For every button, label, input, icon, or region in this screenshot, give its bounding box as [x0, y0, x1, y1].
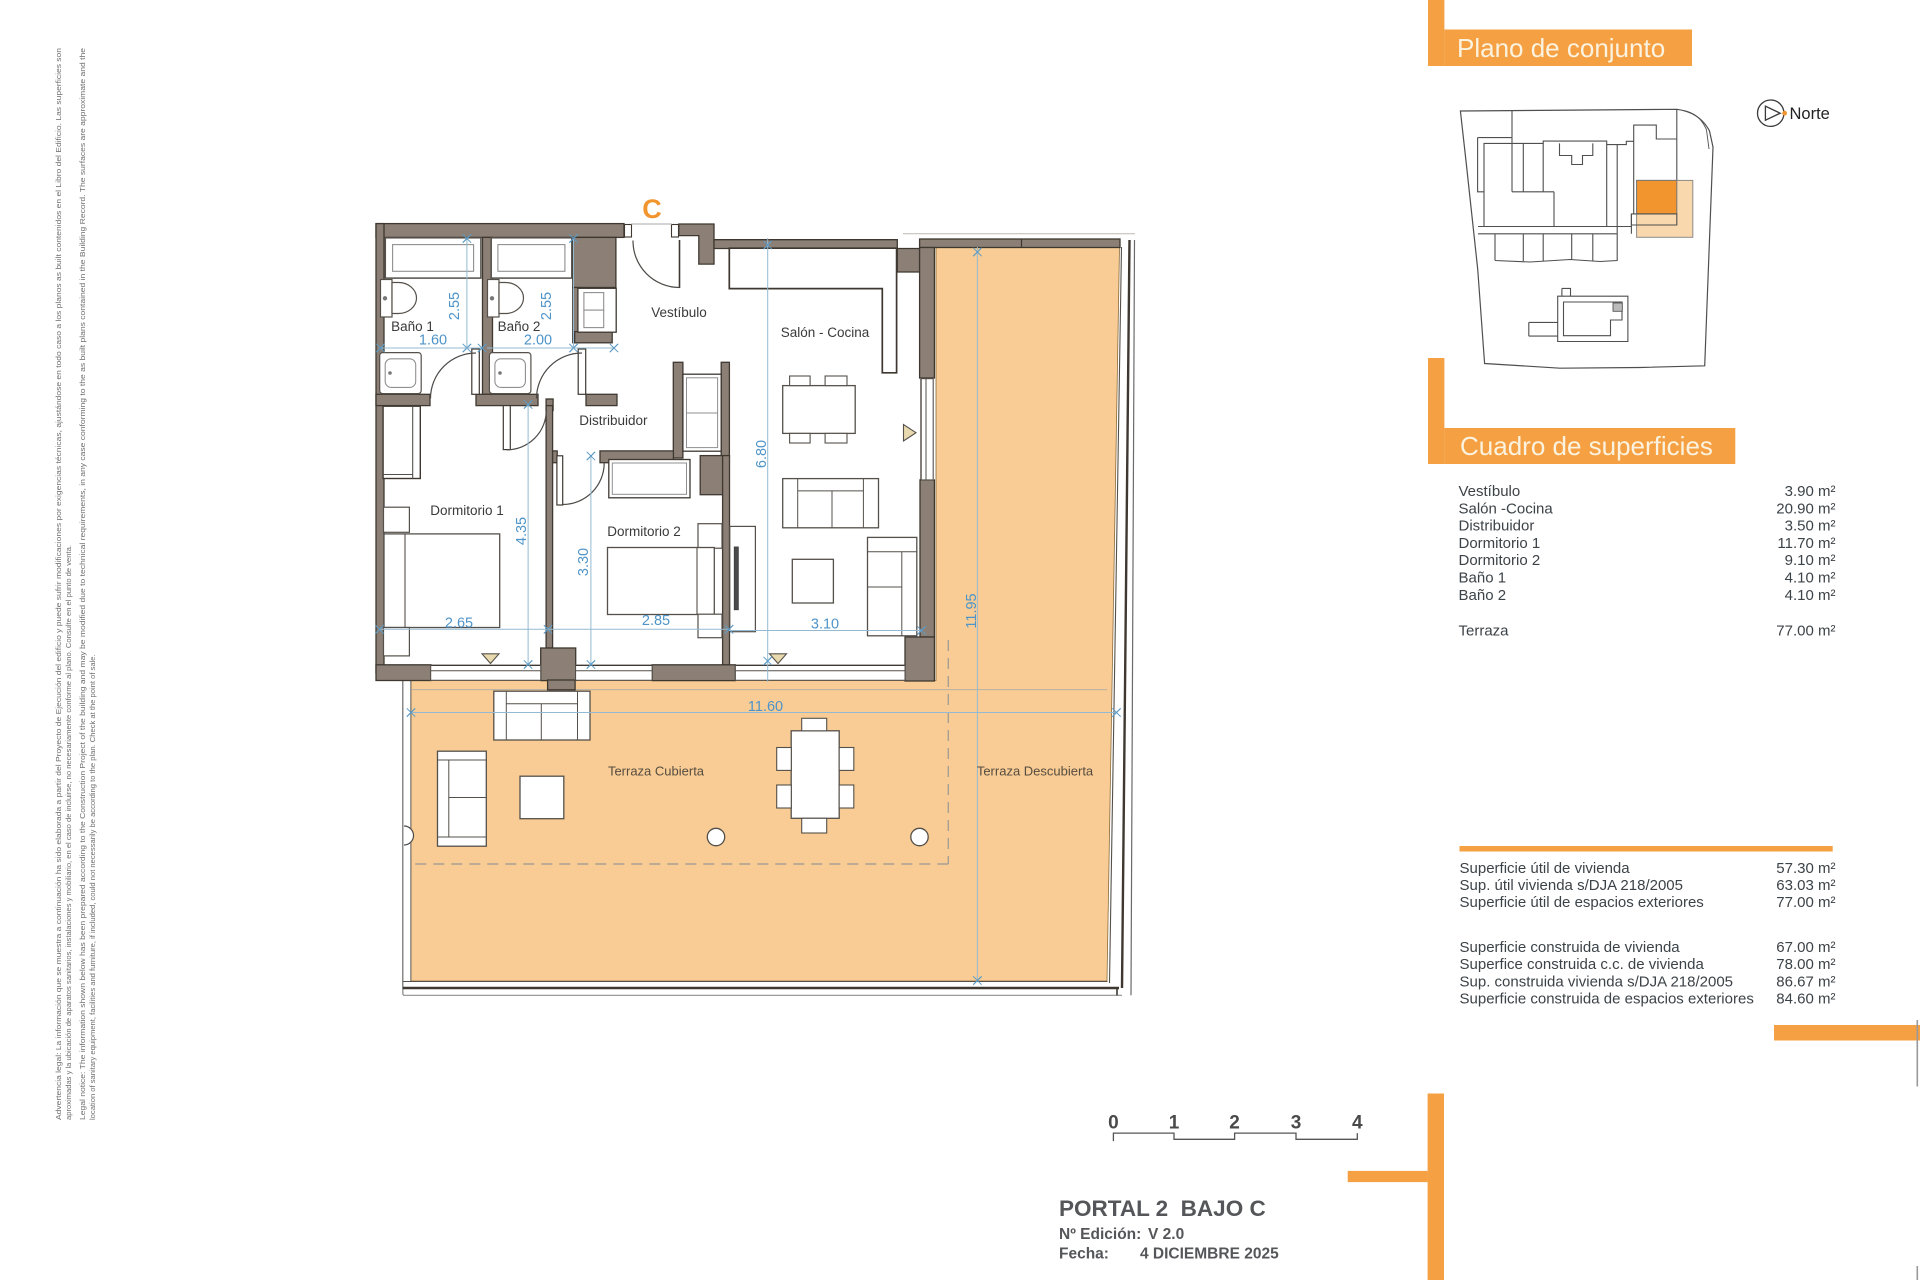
svg-text:Superficie útil de vivienda: Superficie útil de vivienda — [1460, 860, 1631, 877]
svg-text:77.00 m²: 77.00 m² — [1776, 623, 1835, 640]
svg-text:3.10: 3.10 — [811, 617, 839, 633]
svg-text:4.10 m²: 4.10 m² — [1785, 587, 1836, 604]
svg-text:77.00 m²: 77.00 m² — [1776, 894, 1835, 911]
svg-text:0: 0 — [1108, 1113, 1119, 1134]
svg-text:location of sanitary equipment: location of sanitary equipment, faciliti… — [88, 654, 97, 1120]
svg-text:57.30 m²: 57.30 m² — [1776, 860, 1835, 877]
svg-text:Norte: Norte — [1790, 105, 1830, 123]
svg-text:Dormitorio 2: Dormitorio 2 — [1459, 552, 1541, 569]
svg-text:Cuadro de superficies: Cuadro de superficies — [1460, 431, 1713, 461]
svg-text:2.00: 2.00 — [524, 333, 552, 349]
svg-text:4.10 m²: 4.10 m² — [1785, 570, 1836, 587]
svg-text:78.00 m²: 78.00 m² — [1776, 956, 1835, 973]
svg-text:V 2.0: V 2.0 — [1148, 1226, 1184, 1243]
svg-text:Sup. construida vivienda s/DJA: Sup. construida vivienda s/DJA 218/2005 — [1460, 973, 1734, 990]
svg-text:6.80: 6.80 — [754, 440, 770, 468]
svg-text:Fecha:: Fecha: — [1059, 1246, 1109, 1263]
svg-text:Advertencia legal: La informac: Advertencia legal: La información que se… — [54, 48, 63, 1120]
svg-text:Dormitorio 2: Dormitorio 2 — [607, 524, 681, 539]
svg-text:aproximadas y la ubicación de: aproximadas y la ubicación de aparatos s… — [64, 545, 73, 1120]
svg-text:1: 1 — [1169, 1113, 1180, 1134]
svg-text:86.67 m²: 86.67 m² — [1776, 973, 1835, 990]
svg-text:Baño 2: Baño 2 — [1459, 587, 1507, 604]
svg-text:11.60: 11.60 — [748, 699, 783, 715]
svg-text:Superficie construida de espac: Superficie construida de espacios exteri… — [1460, 991, 1754, 1008]
svg-text:2.85: 2.85 — [642, 613, 670, 629]
svg-text:4: 4 — [1352, 1113, 1363, 1134]
svg-text:Baño 1: Baño 1 — [391, 319, 434, 334]
svg-text:Superficie construida de vivie: Superficie construida de vivienda — [1460, 939, 1681, 956]
svg-text:11.70 m²: 11.70 m² — [1777, 535, 1835, 552]
svg-text:3.90 m²: 3.90 m² — [1785, 483, 1836, 500]
svg-text:67.00 m²: 67.00 m² — [1776, 939, 1835, 956]
svg-text:2.55: 2.55 — [539, 292, 555, 320]
svg-text:Baño 2: Baño 2 — [498, 319, 541, 334]
svg-text:63.03 m²: 63.03 m² — [1776, 877, 1835, 894]
svg-text:Superficie útil de espacios ex: Superficie útil de espacios exteriores — [1460, 894, 1704, 911]
svg-text:Dormitorio 1: Dormitorio 1 — [430, 503, 504, 518]
svg-text:2.55: 2.55 — [447, 292, 463, 320]
svg-text:C: C — [642, 194, 662, 224]
svg-text:Sup. útil vivienda s/DJA 218/2: Sup. útil vivienda s/DJA 218/2005 — [1460, 877, 1683, 894]
svg-text:4.35: 4.35 — [514, 517, 530, 545]
svg-text:3.50 m²: 3.50 m² — [1785, 518, 1836, 535]
svg-text:Vestíbulo: Vestíbulo — [1459, 483, 1521, 500]
svg-text:Baño 1: Baño 1 — [1459, 570, 1507, 587]
svg-text:3.30: 3.30 — [576, 548, 592, 576]
svg-text:Superfice construida c.c. de v: Superfice construida c.c. de vivienda — [1460, 956, 1705, 973]
svg-text:Nº Edición:: Nº Edición: — [1059, 1226, 1141, 1243]
svg-text:Plano de conjunto: Plano de conjunto — [1457, 33, 1665, 63]
svg-text:2: 2 — [1229, 1113, 1240, 1134]
svg-text:4 DICIEMBRE 2025: 4 DICIEMBRE 2025 — [1140, 1246, 1279, 1263]
svg-text:Terraza: Terraza — [1459, 623, 1510, 640]
svg-text:Salón -Cocina: Salón -Cocina — [1459, 500, 1554, 517]
svg-text:Salón - Cocina: Salón - Cocina — [781, 325, 870, 340]
svg-text:Terraza Cubierta: Terraza Cubierta — [608, 764, 705, 779]
svg-text:11.95: 11.95 — [964, 593, 980, 628]
svg-text:Vestíbulo: Vestíbulo — [651, 305, 707, 320]
svg-text:Legal notice: The information: Legal notice: The information shown belo… — [78, 48, 87, 1120]
svg-text:Terraza Descubierta: Terraza Descubierta — [977, 764, 1094, 779]
svg-text:2.65: 2.65 — [445, 616, 473, 632]
svg-text:Dormitorio 1: Dormitorio 1 — [1459, 535, 1541, 552]
svg-text:Distribuidor: Distribuidor — [579, 413, 648, 428]
svg-text:1.60: 1.60 — [419, 333, 447, 349]
svg-text:PORTAL 2 BAJO C: PORTAL 2 BAJO C — [1059, 1196, 1266, 1221]
svg-text:Distribuidor: Distribuidor — [1459, 518, 1535, 535]
svg-text:9.10 m²: 9.10 m² — [1785, 552, 1836, 569]
svg-text:20.90 m²: 20.90 m² — [1776, 500, 1835, 517]
svg-text:3: 3 — [1291, 1113, 1302, 1134]
svg-text:84.60 m²: 84.60 m² — [1776, 991, 1835, 1008]
